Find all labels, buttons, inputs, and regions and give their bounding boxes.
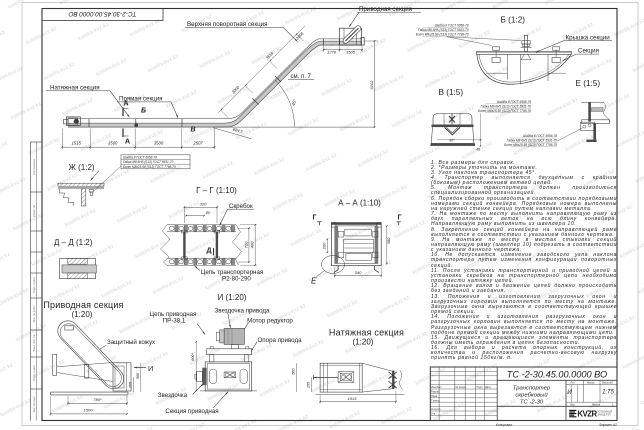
svg-text:Шайба 8 ГОСТ 6958-78: Шайба 8 ГОСТ 6958-78 [123, 155, 157, 159]
svg-text:Инв. № подл.: Инв. № подл. [32, 395, 36, 412]
svg-text:см. п. 7: см. п. 7 [291, 74, 312, 80]
svg-text:Копировал: Копировал [496, 423, 513, 427]
svg-text:Секция: Секция [578, 48, 599, 55]
svg-text:И (1:20): И (1:20) [218, 293, 247, 302]
svg-text:Р2-80-290: Р2-80-290 [222, 275, 251, 282]
svg-text:800*: 800* [191, 353, 195, 361]
svg-text:Крышка секции: Крышка секции [566, 34, 611, 41]
svg-text:Е: Е [311, 276, 317, 285]
svg-text:Е (1:5): Е (1:5) [576, 79, 601, 88]
svg-text:Гайка М8-6Н5 (S13) ГОСТ 5931-7: Гайка М8-6Н5 (S13) ГОСТ 5931-70 [418, 28, 469, 32]
svg-text:А: А [125, 137, 130, 146]
svg-text:ЗАВОД РЭП: ЗАВОД РЭП [598, 414, 611, 417]
svg-text:Защитный кожух: Защитный кожух [107, 339, 156, 346]
svg-text:1500: 1500 [84, 408, 94, 413]
svg-text:Д: Д [207, 247, 212, 254]
svg-text:А: А [123, 99, 128, 108]
svg-text:3500: 3500 [108, 141, 118, 146]
svg-text:Верхняя поворотная секция: Верхняя поворотная секция [187, 21, 267, 28]
svg-text:Пров.: Пров. [431, 394, 438, 398]
svg-text:ТС-2-30.45.00.0000 ВО: ТС-2-30.45.00.0000 ВО [68, 10, 136, 17]
svg-text:Болт М8х25.58 (S13) ГОСТ 7798-: Болт М8х25.58 (S13) ГОСТ 7798-70 [504, 143, 557, 147]
svg-text:Д – Д (1:2): Д – Д (1:2) [54, 238, 93, 247]
svg-text:В (1:5): В (1:5) [439, 88, 464, 97]
svg-text:Болт М8х25.58 (S13) ГОСТ 7798-: Болт М8х25.58 (S13) ГОСТ 7798-70 [416, 32, 469, 36]
svg-text:И: И [567, 389, 572, 396]
svg-text:Болт М8х25.58 (S13) ГОСТ 7798-: Болт М8х25.58 (S13) ГОСТ 7798-70 [478, 109, 531, 113]
svg-text:1276: 1276 [327, 50, 337, 55]
svg-text:В: В [191, 127, 196, 134]
svg-text:380: 380 [386, 237, 391, 244]
svg-text:Приводная секция: Приводная секция [359, 6, 412, 13]
svg-text:Секция приводная: Секция приводная [165, 408, 218, 415]
svg-text:560: 560 [136, 372, 140, 379]
svg-text:780*: 780* [93, 397, 102, 402]
svg-text:Б: Б [141, 108, 146, 115]
svg-text:400: 400 [250, 241, 255, 248]
svg-text:320: 320 [200, 202, 207, 207]
svg-text:Звездочка: Звездочка [158, 392, 188, 399]
svg-text:Шайба 8 ГОСТ 6958-78: Шайба 8 ГОСТ 6958-78 [523, 134, 557, 138]
svg-text:1505: 1505 [346, 50, 356, 55]
svg-text:90°: 90° [449, 138, 455, 142]
svg-text:И: И [148, 364, 153, 373]
svg-text:Гайка М8-6Н5 (S13) ГОСТ 5931-7: Гайка М8-6Н5 (S13) ГОСТ 5931-70 [123, 160, 174, 164]
svg-text:Листов: Листов [592, 404, 601, 407]
svg-text:80: 80 [206, 210, 211, 215]
svg-text:(1:20): (1:20) [72, 310, 93, 319]
svg-text:Лит.: Лит. [571, 382, 576, 385]
svg-text:3500: 3500 [154, 141, 164, 146]
svg-text:Лист: Лист [570, 404, 576, 407]
svg-text:ТС -2-30.45.00.0000 ВО: ТС -2-30.45.00.0000 ВО [507, 370, 607, 380]
svg-text:Утв.: Утв. [431, 412, 436, 416]
svg-text:№ докум.: № докум. [456, 386, 467, 389]
svg-text:Справ. №: Справ. № [32, 205, 36, 217]
svg-text:1515: 1515 [72, 141, 82, 146]
svg-text:Разраб.: Разраб. [431, 390, 441, 394]
svg-text:2507: 2507 [192, 141, 203, 146]
svg-text:Звездочка привода: Звездочка привода [215, 307, 270, 314]
svg-text:Скребок: Скребок [229, 203, 253, 210]
svg-text:720: 720 [243, 241, 248, 248]
svg-text:ТС -2-30: ТС -2-30 [520, 400, 544, 406]
svg-text:Подп.: Подп. [477, 386, 484, 389]
svg-text:Формат А2: Формат А2 [599, 423, 617, 427]
svg-text:KVZR: KVZR [577, 410, 597, 419]
svg-text:ПР-38,1: ПР-38,1 [163, 318, 186, 325]
svg-text:Опора привода: Опора привода [257, 337, 302, 344]
svg-text:255: 255 [306, 381, 310, 389]
svg-text:Транспортер: Транспортер [513, 386, 551, 392]
svg-text:скребковый: скребковый [515, 392, 548, 399]
svg-text:6102: 6102 [369, 80, 374, 90]
svg-text:Дата: Дата [485, 386, 491, 389]
svg-text:Взам. инв. №: Взам. инв. № [32, 335, 36, 352]
svg-text:Г: Г [313, 214, 317, 221]
svg-text:Шайба 8 ГОСТ 6958-78: Шайба 8 ГОСТ 6958-78 [435, 24, 469, 28]
svg-text:Ж (1:2): Ж (1:2) [69, 163, 95, 172]
svg-text:560: 560 [291, 367, 295, 374]
svg-text:Н.контр.: Н.контр. [431, 407, 441, 411]
svg-text:265: 265 [129, 381, 133, 389]
svg-text:КОТЕЛЬНЫЙ: КОТЕЛЬНЫЙ [598, 411, 613, 414]
svg-text:(1:20): (1:20) [353, 337, 374, 346]
svg-text:1:75: 1:75 [602, 390, 614, 396]
svg-text:Б (1:2): Б (1:2) [501, 16, 526, 25]
svg-text:Шайба 8 ГОСТ 6958-78: Шайба 8 ГОСТ 6958-78 [497, 100, 531, 104]
svg-text:340: 340 [355, 270, 362, 275]
svg-text:Г: Г [398, 214, 402, 221]
svg-text:Согласовано: Согласовано [32, 158, 36, 175]
svg-text:Инв. № дубл.: Инв. № дубл. [32, 305, 36, 322]
svg-text:1515: 1515 [348, 396, 358, 401]
svg-text:45: 45 [476, 148, 480, 152]
svg-text:Подп. и дата: Подп. и дата [32, 365, 36, 381]
svg-text:Масса: Масса [587, 382, 595, 385]
svg-text:Приводная секция: Приводная секция [43, 300, 123, 310]
svg-text:Болт М8х25.58 (S13) ГОСТ 7798-: Болт М8х25.58 (S13) ГОСТ 7798-70 [123, 165, 176, 169]
svg-text:Изм.Лист: Изм.Лист [431, 386, 443, 389]
svg-text:Мотор редуктор: Мотор редуктор [247, 318, 293, 325]
svg-text:Натяжная секция: Натяжная секция [329, 327, 404, 337]
svg-text:Гайка М8-6Н5 (S13) ГОСТ 5931-7: Гайка М8-6Н5 (S13) ГОСТ 5931-70 [481, 104, 532, 108]
svg-text:Т.контр.: Т.контр. [431, 398, 441, 402]
svg-text:Гайка М8-6Н5 (S13) ГОСТ 5931-7: Гайка М8-6Н5 (S13) ГОСТ 5931-70 [507, 139, 558, 143]
svg-text:Г – Г (1:10): Г – Г (1:10) [196, 186, 237, 195]
svg-text:Подп. и дата: Подп. и дата [32, 277, 36, 293]
svg-text:Масштаб: Масштаб [602, 382, 613, 385]
svg-text:200: 200 [322, 242, 327, 250]
svg-text:Натяжная секция: Натяжная секция [50, 84, 100, 91]
svg-text:А – А (1:10): А – А (1:10) [338, 199, 381, 208]
